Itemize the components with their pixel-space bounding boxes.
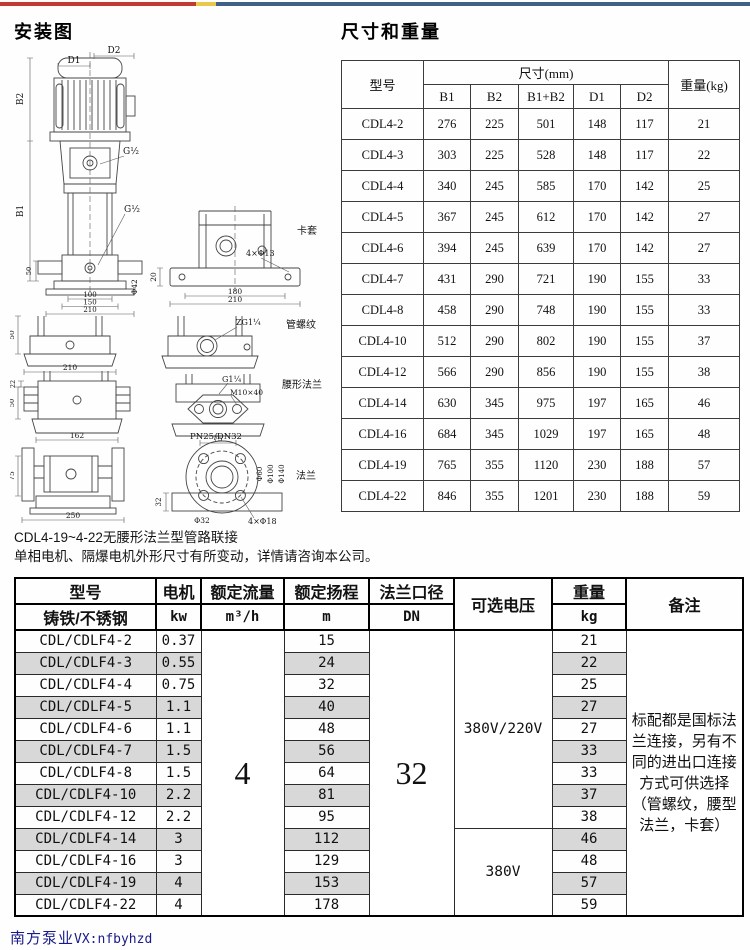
dim-value-cell: 197 [574, 419, 621, 450]
dim-table-row: CDL4-22846355120123018859 [342, 481, 740, 512]
dim-value-cell: 190 [574, 326, 621, 357]
spec-kw-cell: 0.55 [156, 652, 201, 674]
dim-value-cell: 340 [424, 171, 471, 202]
dim-model-cell: CDL4-12 [342, 357, 424, 388]
dimensions-weight-title: 尺寸和重量 [341, 18, 441, 44]
dim-value-cell: 170 [574, 233, 621, 264]
dim-value-cell: 142 [621, 171, 669, 202]
dim-table-row: CDL4-19765355112023018857 [342, 450, 740, 481]
dim-value-cell: 37 [669, 326, 740, 357]
spec-head-cell: 40 [284, 696, 369, 718]
dim-label-g75: 75 [10, 471, 16, 481]
spec-voltage-cell: 380V [454, 828, 552, 916]
waist-flange-variant-label: 腰形法兰 [282, 378, 322, 391]
dim-value-cell: 1201 [519, 481, 574, 512]
spec-col-flow: 额定流量 [201, 578, 284, 604]
dim-col-size: 尺寸(mm) [424, 61, 669, 85]
dim-model-cell: CDL4-5 [342, 202, 424, 233]
spec-unit-kw: kw [156, 604, 201, 630]
dim-value-cell: 566 [424, 357, 471, 388]
spec-weight-cell: 57 [552, 872, 626, 894]
spec-kw-cell: 1.5 [156, 762, 201, 784]
spec-weight-cell: 37 [552, 784, 626, 806]
spec-model-cell: CDL/CDLF4-16 [15, 850, 156, 872]
dim-label-4xphi18: 4×Φ18 [248, 517, 277, 526]
dim-value-cell: 142 [621, 233, 669, 264]
dim-value-cell: 630 [424, 388, 471, 419]
dim-value-cell: 148 [574, 140, 621, 171]
notes-block: CDL4-19~4-22无腰形法兰型管路联接 单相电机、隔爆电机外形尺寸有所变动… [14, 528, 379, 566]
spec-head-cell: 95 [284, 806, 369, 828]
spec-kw-cell: 4 [156, 872, 201, 894]
dim-value-cell: 394 [424, 233, 471, 264]
spec-head-cell: 64 [284, 762, 369, 784]
dim-value-cell: 245 [471, 171, 519, 202]
spec-model-cell: CDL/CDLF4-8 [15, 762, 156, 784]
dim-value-cell: 148 [574, 109, 621, 140]
dim-value-cell: 155 [621, 357, 669, 388]
dim-value-cell: 431 [424, 264, 471, 295]
spec-unit-m: m [284, 604, 369, 630]
dim-model-cell: CDL4-2 [342, 109, 424, 140]
dim-value-cell: 245 [471, 233, 519, 264]
dim-value-cell: 59 [669, 481, 740, 512]
spec-table-row: CDL/CDLF4-20.3741532380V/220V21标配都是国标法兰连… [15, 630, 743, 652]
dim-table-row: CDL4-434024558517014225 [342, 171, 740, 202]
dim-value-cell: 355 [471, 450, 519, 481]
spec-weight-cell: 27 [552, 718, 626, 740]
spec-remark-cell: 标配都是国标法兰连接，另有不同的进出口连接方式可供选择（管螺纹，腰型法兰，卡套） [626, 630, 743, 916]
dim-value-cell: 290 [471, 295, 519, 326]
dim-value-cell: 57 [669, 450, 740, 481]
spec-voltage-cell: 380V/220V [454, 630, 552, 828]
dim-label-m10x40: M10×40 [230, 388, 263, 397]
dim-table-row: CDL4-1051229080219015537 [342, 326, 740, 357]
spec-weight-cell: 38 [552, 806, 626, 828]
spec-col-weight: 重量 [552, 578, 626, 604]
spec-weight-cell: 25 [552, 674, 626, 696]
dim-model-cell: CDL4-22 [342, 481, 424, 512]
dim-label-d1: D1 [68, 56, 81, 66]
dim-subcol-d1: D1 [574, 85, 621, 109]
dim-label-g114: G1¼ [222, 375, 241, 384]
spec-weight-cell: 48 [552, 850, 626, 872]
dim-model-cell: CDL4-10 [342, 326, 424, 357]
dim-value-cell: 225 [471, 109, 519, 140]
dim-value-cell: 612 [519, 202, 574, 233]
dim-subcol-b2: B2 [471, 85, 519, 109]
spec-unit-dn: DN [369, 604, 454, 630]
dim-label-50: 50 [25, 267, 33, 275]
thread-variant-label: 管螺纹 [286, 318, 316, 331]
dim-value-cell: 27 [669, 202, 740, 233]
dim-value-cell: 225 [471, 140, 519, 171]
spec-kw-cell: 0.37 [156, 630, 201, 652]
dim-value-cell: 290 [471, 326, 519, 357]
dim-value-cell: 142 [621, 202, 669, 233]
dim-label-c210: 210 [63, 363, 78, 372]
dim-value-cell: 355 [471, 481, 519, 512]
dim-value-cell: 117 [621, 109, 669, 140]
dim-value-cell: 721 [519, 264, 574, 295]
dim-value-cell: 765 [424, 450, 471, 481]
dim-value-cell: 21 [669, 109, 740, 140]
spec-model-cell: CDL/CDLF4-14 [15, 828, 156, 850]
spec-head-cell: 48 [284, 718, 369, 740]
spec-model-cell: CDL/CDLF4-12 [15, 806, 156, 828]
dim-value-cell: 38 [669, 357, 740, 388]
dim-value-cell: 190 [574, 295, 621, 326]
installation-diagram-title: 安装图 [14, 18, 74, 44]
dim-label-b1: B1 [16, 205, 26, 217]
dim-value-cell: 27 [669, 233, 740, 264]
dim-value-cell: 528 [519, 140, 574, 171]
dim-value-cell: 230 [574, 450, 621, 481]
spec-weight-cell: 22 [552, 652, 626, 674]
dim-value-cell: 117 [621, 140, 669, 171]
dim-value-cell: 748 [519, 295, 574, 326]
dimensions-weight-table: 型号 尺寸(mm) 重量(kg) B1 B2 B1+B2 D1 D2 CDL4-… [341, 60, 740, 512]
spec-col-model: 型号 [15, 578, 156, 604]
dim-model-cell: CDL4-7 [342, 264, 424, 295]
dim-value-cell: 190 [574, 264, 621, 295]
dim-value-cell: 856 [519, 357, 574, 388]
dim-value-cell: 639 [519, 233, 574, 264]
note-line-2: 单相电机、隔爆电机外形尺寸有所变动，详情请咨询本公司。 [14, 547, 379, 566]
dim-value-cell: 846 [424, 481, 471, 512]
note-line-1: CDL4-19~4-22无腰形法兰型管路联接 [14, 528, 379, 547]
spec-kw-cell: 3 [156, 828, 201, 850]
dim-col-weight: 重量(kg) [669, 61, 740, 109]
dim-value-cell: 190 [574, 357, 621, 388]
spec-head-cell: 129 [284, 850, 369, 872]
spec-weight-cell: 33 [552, 762, 626, 784]
spec-col-head: 额定扬程 [284, 578, 369, 604]
spec-head-cell: 15 [284, 630, 369, 652]
dim-model-cell: CDL4-16 [342, 419, 424, 450]
spec-kw-cell: 2.2 [156, 784, 201, 806]
dim-value-cell: 684 [424, 419, 471, 450]
top-bar-blue [216, 2, 750, 6]
dim-value-cell: 290 [471, 264, 519, 295]
spec-unit-kg: kg [552, 604, 626, 630]
spec-head-cell: 32 [284, 674, 369, 696]
dim-table-row: CDL4-536724561217014227 [342, 202, 740, 233]
spec-model-cell: CDL/CDLF4-3 [15, 652, 156, 674]
spec-kw-cell: 1.5 [156, 740, 201, 762]
dim-table-body: CDL4-227622550114811721CDL4-330322552814… [342, 109, 740, 512]
spec-model-cell: CDL/CDLF4-2 [15, 630, 156, 652]
spec-weight-cell: 59 [552, 894, 626, 916]
dim-label-phi100: Φ100 [267, 464, 275, 483]
dim-value-cell: 367 [424, 202, 471, 233]
dim-label-d2: D2 [108, 46, 121, 56]
dim-col-model: 型号 [342, 61, 424, 109]
top-bar-yellow [196, 2, 216, 6]
spec-model-cell: CDL/CDLF4-19 [15, 872, 156, 894]
wechat-id: VX:nfbyhzd [74, 932, 152, 947]
dim-label-250: 250 [66, 511, 81, 520]
spec-weight-cell: 46 [552, 828, 626, 850]
dim-subcol-b1: B1 [424, 85, 471, 109]
dim-model-cell: CDL4-19 [342, 450, 424, 481]
spec-kw-cell: 3 [156, 850, 201, 872]
spec-subcol-material: 铸铁/不锈钢 [15, 604, 156, 630]
dim-value-cell: 46 [669, 388, 740, 419]
spec-kw-cell: 1.1 [156, 718, 201, 740]
installation-diagram: D2 D1 B2 B1 G½ G½ 50 100 150 210 Φ42 卡套 … [10, 44, 340, 526]
dim-table-row: CDL4-1463034597519716546 [342, 388, 740, 419]
dim-value-cell: 802 [519, 326, 574, 357]
dim-value-cell: 155 [621, 295, 669, 326]
dim-label-20: 20 [149, 272, 158, 282]
dim-value-cell: 512 [424, 326, 471, 357]
dim-value-cell: 25 [669, 171, 740, 202]
flange-variant-label: 法兰 [296, 469, 316, 482]
spec-col-remark: 备注 [626, 578, 743, 630]
spec-table-body: CDL/CDLF4-20.3741532380V/220V21标配都是国标法兰连… [15, 630, 743, 916]
dim-value-cell: 230 [574, 481, 621, 512]
spec-model-cell: CDL/CDLF4-4 [15, 674, 156, 696]
footer: 南方泵业VX:nfbyhzd [10, 927, 152, 948]
spec-kw-cell: 1.1 [156, 696, 201, 718]
dim-model-cell: CDL4-4 [342, 171, 424, 202]
dim-label-4xphi13: 4×Φ13 [246, 249, 275, 258]
dim-value-cell: 22 [669, 140, 740, 171]
spec-col-flange: 法兰口径 [369, 578, 454, 604]
dim-label-phi32: Φ32 [194, 516, 210, 525]
dim-value-cell: 458 [424, 295, 471, 326]
dim-value-cell: 155 [621, 264, 669, 295]
spec-col-voltage: 可选电压 [454, 578, 552, 630]
dim-label-g-top: G½ [123, 146, 139, 157]
spec-model-cell: CDL/CDLF4-10 [15, 784, 156, 806]
dim-label-e50: 50 [10, 399, 16, 407]
spec-head-cell: 153 [284, 872, 369, 894]
spec-model-cell: CDL/CDLF4-22 [15, 894, 156, 916]
spec-weight-cell: 21 [552, 630, 626, 652]
spec-flow-cell: 4 [201, 630, 284, 916]
dim-label-g-bottom: G½ [124, 204, 140, 215]
dim-value-cell: 303 [424, 140, 471, 171]
spec-head-cell: 81 [284, 784, 369, 806]
spec-kw-cell: 2.2 [156, 806, 201, 828]
spec-model-cell: CDL/CDLF4-7 [15, 740, 156, 762]
dim-value-cell: 165 [621, 388, 669, 419]
dim-label-phi140: Φ140 [278, 464, 286, 483]
dim-value-cell: 197 [574, 388, 621, 419]
dim-label-zg114: ZG1¼ [236, 318, 261, 327]
dim-value-cell: 165 [621, 419, 669, 450]
spec-weight-cell: 27 [552, 696, 626, 718]
dim-table-row: CDL4-330322552814811722 [342, 140, 740, 171]
dim-label-210b: 210 [228, 295, 243, 304]
dim-value-cell: 1029 [519, 419, 574, 450]
dim-value-cell: 345 [471, 419, 519, 450]
clamp-variant-label: 卡套 [297, 224, 317, 237]
dim-value-cell: 276 [424, 109, 471, 140]
dim-table-row: CDL4-743129072119015533 [342, 264, 740, 295]
dim-value-cell: 245 [471, 202, 519, 233]
dim-model-cell: CDL4-3 [342, 140, 424, 171]
spec-kw-cell: 4 [156, 894, 201, 916]
diagram-dimension-lines [15, 52, 300, 523]
top-bar-red [0, 2, 196, 6]
dim-value-cell: 585 [519, 171, 574, 202]
dim-table-row: CDL4-639424563917014227 [342, 233, 740, 264]
datasheet-page: 安装图 尺寸和重量 [0, 0, 750, 950]
dim-value-cell: 33 [669, 264, 740, 295]
dim-value-cell: 33 [669, 295, 740, 326]
dim-label-pn25-dn32: PN25/DN32 [190, 432, 242, 442]
dim-label-h32: 32 [155, 498, 163, 507]
spec-unit-m3h: m³/h [201, 604, 284, 630]
dim-value-cell: 975 [519, 388, 574, 419]
dim-value-cell: 345 [471, 388, 519, 419]
spec-weight-cell: 33 [552, 740, 626, 762]
spec-model-cell: CDL/CDLF4-6 [15, 718, 156, 740]
dim-value-cell: 290 [471, 357, 519, 388]
dim-label-phi60: Φ60 [256, 467, 264, 482]
spec-flange-cell: 32 [369, 630, 454, 916]
dim-value-cell: 188 [621, 450, 669, 481]
dim-value-cell: 170 [574, 171, 621, 202]
top-color-bar [0, 2, 750, 6]
dim-model-cell: CDL4-6 [342, 233, 424, 264]
spec-table: 型号 电机 额定流量 额定扬程 法兰口径 可选电压 重量 备注 铸铁/不锈钢 k… [14, 577, 744, 917]
dim-value-cell: 501 [519, 109, 574, 140]
dim-value-cell: 155 [621, 326, 669, 357]
spec-head-cell: 112 [284, 828, 369, 850]
dim-table-row: CDL4-845829074819015533 [342, 295, 740, 326]
dim-label-b2: B2 [16, 93, 26, 105]
dim-model-cell: CDL4-8 [342, 295, 424, 326]
dim-label-162: 162 [70, 431, 85, 440]
dim-table-row: CDL4-16684345102919716548 [342, 419, 740, 450]
dim-label-phi42: Φ42 [130, 279, 139, 295]
dim-value-cell: 188 [621, 481, 669, 512]
dim-table-row: CDL4-1256629085619015538 [342, 357, 740, 388]
dim-subcol-b1b2: B1+B2 [519, 85, 574, 109]
dim-table-row: CDL4-227622550114811721 [342, 109, 740, 140]
spec-kw-cell: 0.75 [156, 674, 201, 696]
dim-label-c50: 50 [10, 330, 16, 340]
dim-model-cell: CDL4-14 [342, 388, 424, 419]
spec-head-cell: 24 [284, 652, 369, 674]
dim-value-cell: 170 [574, 202, 621, 233]
dim-subcol-d2: D2 [621, 85, 669, 109]
spec-col-motor: 电机 [156, 578, 201, 604]
dim-label-210: 210 [83, 306, 96, 314]
spec-model-cell: CDL/CDLF4-5 [15, 696, 156, 718]
spec-head-cell: 56 [284, 740, 369, 762]
brand-name: 南方泵业 [10, 930, 74, 947]
spec-head-cell: 178 [284, 894, 369, 916]
dim-value-cell: 48 [669, 419, 740, 450]
dim-label-e22: 22 [10, 380, 17, 388]
dim-value-cell: 1120 [519, 450, 574, 481]
